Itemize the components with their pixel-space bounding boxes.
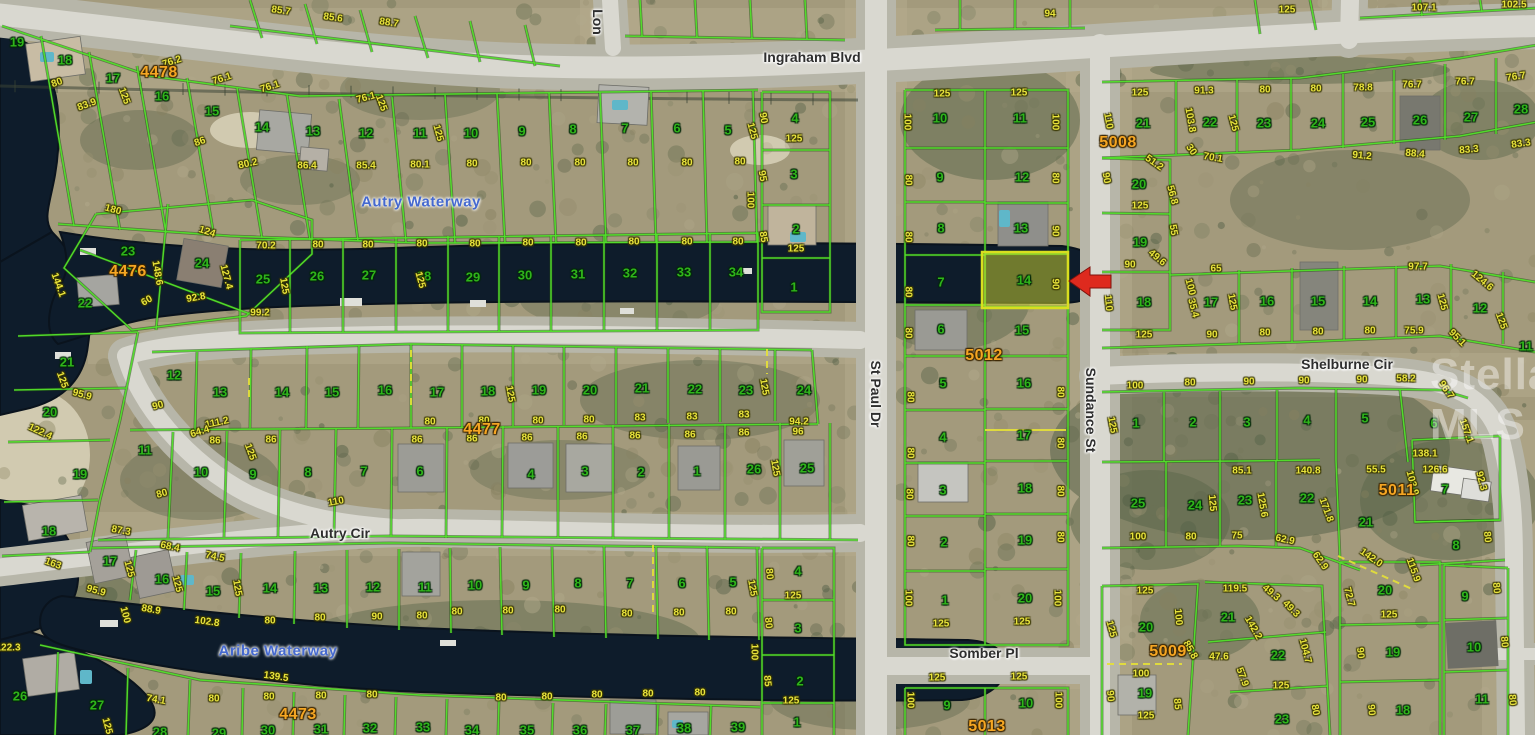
parcel-dimension: 148.6 (149, 260, 164, 287)
parcel-dimension: 86 (209, 436, 220, 447)
block-number: 5009 (1149, 643, 1187, 661)
parcel-dimension: 102.5 (1501, 0, 1526, 11)
parcel-dimension: 95.9 (85, 583, 107, 599)
lot-number: 32 (363, 721, 377, 735)
block-number: 4478 (140, 64, 178, 82)
parcel-dimension: 86 (738, 428, 749, 439)
lot-number: 17 (430, 385, 444, 400)
parcel-dimension: 100 (1127, 381, 1144, 392)
lot-number: 8 (1452, 538, 1459, 553)
parcel-dimension: 88.9 (140, 603, 161, 617)
parcel-dimension: 125 (1279, 5, 1296, 16)
parcel-dimension: 49.3 (1260, 583, 1282, 604)
lot-number: 15 (1015, 323, 1029, 338)
lot-number: 3 (790, 167, 797, 182)
parcel-dimension: 95.9 (71, 387, 93, 403)
lot-number: 7 (626, 576, 633, 591)
parcel-dimension: 70.2 (256, 241, 275, 252)
lot-number: 22 (78, 296, 92, 311)
parcel-dimension: 125 (1225, 293, 1239, 311)
parcel-dimension: 103.8 (1182, 107, 1197, 134)
parcel-dimension: 85.6 (323, 11, 344, 25)
lot-number: 25 (256, 272, 270, 287)
parcel-dimension: 62.9 (1310, 550, 1330, 572)
lot-number: 29 (466, 270, 480, 285)
parcel-dimension: 80 (314, 613, 325, 624)
parcel-dimension: 80 (903, 327, 914, 338)
parcel-dimension: 125 (1493, 311, 1509, 330)
parcel-dimension: 142.0 (1358, 546, 1385, 569)
parcel-dimension: 74.5 (204, 550, 225, 565)
parcel-dimension: 80 (466, 159, 477, 170)
parcel-dimension: 126.6 (1422, 465, 1447, 476)
lot-number: 24 (195, 256, 209, 271)
parcel-dimension: 125 (768, 459, 782, 477)
lot-number: 26 (1413, 113, 1427, 128)
parcel-dimension: 49.3 (1280, 598, 1302, 620)
lot-number: 15 (325, 385, 339, 400)
parcel-dimension: 125 (54, 370, 70, 389)
lot-number: 29 (212, 726, 226, 735)
parcel-dimension: 125 (242, 442, 258, 461)
street-label-autry-cir: Autry Cir (310, 525, 370, 541)
lot-number: 13 (213, 385, 227, 400)
parcel-dimension: 157.1 (1457, 417, 1476, 444)
lot-number: 21 (1136, 116, 1150, 131)
lot-number: 17 (1204, 295, 1218, 310)
parcel-dimension: 80 (591, 690, 602, 701)
parcel-dimension: 80 (1498, 636, 1510, 648)
parcel-dimension: 80 (1055, 485, 1066, 496)
parcel-dimension: 95 (756, 170, 769, 183)
parcel-dimension: 76.7 (1402, 80, 1421, 91)
lot-number: 28 (417, 269, 431, 284)
parcel-dimension: 75.9 (1404, 326, 1423, 337)
parcel-dimension: 51.2 (1143, 153, 1165, 173)
lot-number: 15 (205, 104, 219, 119)
parcel-dimension: 78.8 (1353, 83, 1372, 94)
parcel-dimension: 80 (554, 605, 565, 616)
parcel-dimension: 125 (745, 122, 760, 141)
parcel-dimension: 83 (686, 412, 697, 423)
lot-number: 16 (1260, 294, 1274, 309)
parcel-dimension: 80 (315, 691, 326, 702)
lot-number: 6 (937, 322, 944, 337)
parcel-dimension: 68.4 (159, 540, 180, 555)
lot-number: 22 (1271, 648, 1285, 663)
parcel-dimension: 100 (118, 606, 133, 625)
parcel-dimension: 180 (104, 203, 123, 218)
lot-number: 17 (1017, 428, 1031, 443)
parcel-dimension: 80 (905, 535, 916, 546)
parcel-dimension: 80 (312, 240, 323, 251)
parcel-dimension: 80 (621, 609, 632, 620)
street-label-ingraham-blvd: Ingraham Blvd (763, 49, 860, 65)
parcel-dimension: 80 (495, 693, 506, 704)
lot-number: 9 (1461, 589, 1468, 604)
parcel-dimension: 125 (1435, 293, 1450, 312)
lot-number: 26 (747, 462, 761, 477)
lot-number: 18 (42, 524, 56, 539)
parcel-dimension: 90 (1354, 647, 1366, 659)
block-number: 4473 (279, 706, 317, 724)
waterway-label-autry-waterway: Autry Waterway (361, 194, 481, 211)
lot-number: 27 (1464, 110, 1478, 125)
lot-number: 11 (413, 126, 427, 141)
block-number: 5013 (968, 718, 1006, 735)
parcel-dimension: 144.1 (49, 271, 68, 298)
parcel-dimension: 92.8 (185, 291, 206, 305)
lot-number: 7 (621, 121, 628, 136)
parcel-dimension: 125.6 (1254, 492, 1269, 519)
parcel-dimension: 72.7 (1341, 586, 1357, 608)
parcel-dimension: 88.4 (1405, 148, 1425, 161)
parcel-dimension: 80 (1050, 172, 1061, 183)
parcel-dimension: 86 (265, 435, 276, 446)
parcel-dimension: 125 (503, 385, 517, 403)
lot-number: 1 (793, 715, 800, 730)
parcel-dimension: 92.3 (1473, 470, 1489, 492)
parcel-dimension: 75 (1231, 531, 1242, 542)
parcel-dimension: 30 (1183, 142, 1198, 157)
parcel-dimension: 90 (371, 612, 382, 623)
parcel-dimension: 55.5 (1366, 465, 1385, 476)
lot-number: 5 (724, 123, 731, 138)
parcel-dimension: 80 (469, 239, 480, 250)
parcel-dimension: 85 (1171, 698, 1183, 710)
parcel-dimension: 110 (1101, 112, 1115, 130)
lot-number: 22 (1300, 491, 1314, 506)
lot-number: 20 (1378, 583, 1392, 598)
parcel-dimension: 127.4 (217, 263, 234, 290)
parcel-dimension: 80 (1364, 326, 1375, 337)
street-label-lon: Lon (590, 9, 606, 35)
parcel-dimension: 125 (745, 579, 759, 597)
parcel-dimension: 80 (208, 694, 219, 705)
parcel-dimension: 111.2 (204, 415, 230, 431)
lot-number: 14 (1363, 294, 1377, 309)
lot-number: 14 (275, 385, 289, 400)
lot-number: 21 (1359, 515, 1373, 530)
parcel-dimension: 80 (1481, 531, 1493, 543)
lot-number: 12 (1473, 301, 1487, 316)
parcel-dimension: 171.8 (1317, 496, 1336, 523)
lot-number: 19 (532, 383, 546, 398)
parcel-dimension: 90 (1365, 704, 1377, 716)
lot-number: 7 (1441, 482, 1448, 497)
lot-number: 7 (360, 464, 367, 479)
lot-number: 25 (1131, 496, 1145, 511)
parcel-dimension: 125 (1132, 88, 1149, 99)
lot-number: 1 (790, 280, 797, 295)
lot-number: 6 (673, 121, 680, 136)
lot-number: 10 (933, 111, 947, 126)
lot-number: 21 (60, 355, 74, 370)
parcel-dimension: 125 (1137, 586, 1154, 597)
parcel-dimension: 140.8 (1295, 466, 1320, 477)
parcel-dimension: 80 (583, 415, 594, 426)
parcel-dimension: 125 (100, 717, 115, 735)
lot-number: 5 (1361, 411, 1368, 426)
parcel-dimension: 125 (929, 673, 946, 684)
lot-number: 17 (103, 554, 117, 569)
street-label-sundance-st: Sundance St (1083, 368, 1099, 453)
lot-number: 23 (121, 244, 135, 259)
parcel-dimension: 80 (1055, 437, 1066, 448)
parcel-dimension: 90 (1100, 172, 1113, 185)
parcel-dimension: 80 (522, 238, 533, 249)
street-label-shelburne-cir: Shelburne Cir (1301, 356, 1393, 372)
lot-number: 26 (13, 689, 27, 704)
lot-number: 35 (520, 723, 534, 735)
parcel-dimension: 86 (576, 432, 587, 443)
lot-number: 19 (10, 35, 24, 50)
lot-number: 6 (416, 464, 423, 479)
parcel-dimension: 80 (532, 416, 543, 427)
lot-number: 9 (518, 124, 525, 139)
parcel-dimension: 125 (277, 277, 291, 295)
parcel-dimension: 87.3 (110, 524, 131, 538)
parcel-dimension: 125 (1138, 711, 1155, 722)
parcel-dimension: 86 (411, 435, 422, 446)
lot-number: 3 (939, 483, 946, 498)
map-labels-layer: 1918171615141312111098765432125262728293… (0, 0, 1535, 735)
parcel-dimension: 60 (139, 293, 154, 308)
lot-number: 10 (194, 465, 208, 480)
parcel-dimension: 80.1 (410, 160, 429, 171)
lot-number: 3 (1243, 415, 1250, 430)
parcel-dimension: 80.2 (237, 157, 258, 172)
parcel-dimension: 76.7 (1455, 77, 1474, 88)
lot-number: 25 (800, 461, 814, 476)
parcel-dimension: 80 (905, 447, 916, 458)
parcel-dimension: 125 (1273, 681, 1290, 692)
parcel-dimension: 76.7 (1506, 70, 1527, 84)
parcel-dimension: 85.8 (1180, 639, 1199, 661)
lot-number: 8 (937, 221, 944, 236)
parcel-dimension: 85 (761, 675, 773, 687)
parcel-dimension: 64.4 (189, 424, 211, 440)
parcel-dimension: 103.9 (1403, 469, 1420, 496)
parcel-dimension: 125 (1381, 610, 1398, 621)
lot-number: 3 (581, 464, 588, 479)
lot-number: 4 (527, 467, 534, 482)
parcel-dimension: 80 (725, 607, 736, 618)
lot-number: 19 (1133, 235, 1147, 250)
parcel-dimension: 76.1 (259, 79, 281, 95)
parcel-dimension: 90 (1298, 376, 1309, 387)
lot-number: 2 (1189, 415, 1196, 430)
lot-number: 8 (574, 576, 581, 591)
lot-number: 4 (794, 564, 801, 579)
parcel-dimension: 125 (230, 579, 244, 597)
lot-number: 9 (936, 170, 943, 185)
parcel-dimension: 125 (1132, 201, 1149, 212)
parcel-dimension: 97.7 (1408, 262, 1427, 273)
parcel-dimension: 80 (1310, 84, 1321, 95)
lot-number: 8 (569, 122, 576, 137)
lot-number: 1 (1132, 416, 1139, 431)
parcel-dimension: 100 (1172, 608, 1184, 626)
lot-number: 13 (306, 124, 320, 139)
lot-number: 14 (1017, 273, 1031, 288)
lot-number: 11 (418, 580, 432, 595)
parcel-dimension: 90 (1243, 377, 1254, 388)
parcel-dimension: 80 (424, 417, 435, 428)
lot-number: 9 (943, 698, 950, 713)
lot-number: 6 (678, 576, 685, 591)
lot-number: 16 (155, 572, 169, 587)
parcel-dimension: 85.1 (1232, 466, 1251, 477)
parcel-dimension: 76.1 (211, 71, 233, 87)
lot-number: 22 (688, 382, 702, 397)
parcel-dimension: 57.9 (1234, 666, 1251, 688)
lot-number: 34 (465, 723, 479, 735)
parcel-dimension: 80 (1490, 582, 1502, 594)
lot-number: 18 (1396, 703, 1410, 718)
lot-number: 15 (206, 584, 220, 599)
parcel-dimension: 125 (1014, 617, 1031, 628)
parcel-dimension: 80 (575, 238, 586, 249)
lot-number: 23 (739, 383, 753, 398)
lot-number: 7 (937, 275, 944, 290)
parcel-dimension: 62.9 (1274, 533, 1295, 548)
lot-number: 20 (1132, 177, 1146, 192)
parcel-dimension: 100 (749, 644, 760, 661)
waterway-label-aribe-waterway: Aribe Waterway (219, 643, 338, 660)
lot-number: 20 (43, 405, 57, 420)
lot-number: 20 (1139, 620, 1153, 635)
parcel-dimension: 96 (792, 427, 803, 438)
lot-number: 16 (378, 383, 392, 398)
lot-number: 23 (1238, 493, 1252, 508)
lot-number: 4 (939, 430, 946, 445)
parcel-dimension: 125 (934, 89, 951, 100)
parcel-dimension: 102.8 (194, 615, 220, 629)
lot-number: 10 (464, 126, 478, 141)
lot-number: 23 (1257, 116, 1271, 131)
parcel-dimension: 124.6 (1469, 269, 1495, 294)
lot-number: 13 (1014, 221, 1028, 236)
parcel-dimension: 80 (574, 158, 585, 169)
parcel-dimension: 90 (1050, 278, 1061, 289)
parcel-dimension: 80 (642, 689, 653, 700)
block-number: 5008 (1099, 134, 1137, 152)
parcel-dimension: 80 (263, 692, 274, 703)
parcel-dimension: 80 (734, 157, 745, 168)
lot-number: 18 (58, 53, 72, 68)
parcel-dimension: 125 (757, 378, 771, 396)
parcel-dimension: 119.5 (1223, 584, 1247, 595)
parcel-dimension: 85.4 (356, 161, 375, 172)
aerial-parcel-map: 1918171615141312111098765432125262728293… (0, 0, 1535, 735)
parcel-dimension: 83.3 (1459, 144, 1479, 157)
parcel-dimension: 80 (627, 158, 638, 169)
lot-number: 19 (73, 467, 87, 482)
lot-number: 24 (1311, 116, 1325, 131)
parcel-dimension: 83 (738, 410, 749, 421)
lot-number: 12 (167, 368, 181, 383)
parcel-dimension: 94.2 (789, 417, 808, 428)
parcel-dimension: 56.8 (1164, 184, 1180, 206)
lot-number: 4 (1303, 413, 1310, 428)
lot-number: 15 (1311, 294, 1325, 309)
lot-number: 10 (468, 578, 482, 593)
lot-number: 1 (693, 464, 700, 479)
lot-number: 20 (1018, 591, 1032, 606)
parcel-dimension: 80 (681, 158, 692, 169)
parcel-dimension: 80 (732, 237, 743, 248)
lot-number: 11 (138, 443, 152, 458)
parcel-dimension: 91.2 (1352, 150, 1372, 163)
parcel-dimension: 86 (193, 135, 207, 149)
parcel-dimension: 80 (541, 692, 552, 703)
lot-number: 25 (1361, 115, 1375, 130)
parcel-dimension: 74.1 (145, 693, 166, 707)
parcel-dimension: 80 (1259, 328, 1270, 339)
parcel-dimension: 80 (1184, 378, 1195, 389)
parcel-dimension: 99.2 (250, 308, 269, 319)
parcel-dimension: 70.1 (1202, 151, 1223, 165)
lot-number: 30 (518, 268, 532, 283)
lot-number: 2 (792, 222, 799, 237)
lot-number: 30 (261, 723, 275, 735)
parcel-dimension: 80 (362, 240, 373, 251)
parcel-dimension: 95.1 (1446, 327, 1468, 349)
street-label-st-paul-dr: St Paul Dr (868, 361, 884, 428)
parcel-dimension: 100 (745, 192, 756, 209)
parcel-dimension: 125 (1105, 416, 1119, 434)
lot-number: 24 (797, 383, 811, 398)
parcel-dimension: 83 (634, 413, 645, 424)
parcel-dimension: 80 (1312, 327, 1323, 338)
parcel-dimension: 104.7 (1296, 637, 1313, 664)
lot-number: 27 (90, 698, 104, 713)
lot-number: 9 (522, 578, 529, 593)
lot-number: 33 (416, 720, 430, 735)
parcel-dimension: 90 (151, 399, 165, 413)
parcel-dimension: 122.4 (26, 422, 53, 443)
parcel-dimension: 125 (788, 244, 805, 255)
parcel-dimension: 100 (902, 114, 913, 131)
parcel-dimension: 125 (170, 575, 185, 594)
parcel-dimension: 163 (43, 556, 62, 572)
parcel-dimension: 90 (1104, 690, 1116, 702)
parcel-dimension: 142.2 (1242, 614, 1264, 641)
lot-number: 31 (571, 267, 585, 282)
parcel-dimension: 125 (1136, 330, 1153, 341)
lot-number: 18 (481, 384, 495, 399)
parcel-dimension: 80 (416, 611, 427, 622)
parcel-dimension: 80 (762, 617, 774, 629)
parcel-dimension: 80 (366, 690, 377, 701)
parcel-dimension: 110 (1102, 294, 1114, 311)
parcel-dimension: 90 (1124, 260, 1135, 271)
parcel-dimension: 58.2 (1396, 374, 1415, 385)
parcel-dimension: 125 (1011, 672, 1028, 683)
parcel-dimension: 80 (628, 237, 639, 248)
parcel-dimension: 100 (1052, 590, 1063, 607)
lot-number: 27 (362, 268, 376, 283)
parcel-dimension: 86 (629, 431, 640, 442)
parcel-dimension: 80 (478, 416, 489, 427)
parcel-dimension: 100 (1183, 278, 1198, 297)
lot-number: 5 (939, 376, 946, 391)
parcel-dimension: 125 (783, 696, 800, 707)
block-number: 4477 (463, 421, 501, 439)
parcel-dimension: 80 (1506, 694, 1518, 706)
parcel-dimension: 83.9 (76, 97, 98, 114)
